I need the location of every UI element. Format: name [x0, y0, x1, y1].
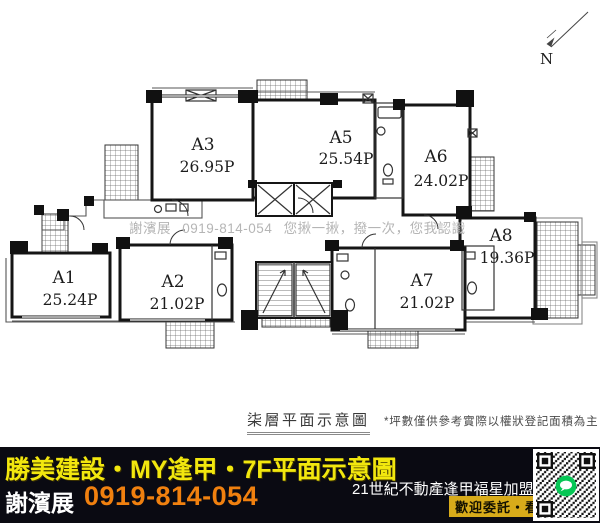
area-disclaimer: *坪數僅供參考實際以權狀登記面積為主: [384, 413, 598, 429]
unit-a6-area: 24.02P: [414, 172, 469, 190]
unit-a7-id: A7: [409, 271, 433, 291]
unit-a2-id: A2: [160, 272, 184, 292]
qr-code: [533, 449, 599, 521]
agent-name: 謝濱展: [5, 484, 74, 518]
plan-caption: 柒層平面示意圖: [247, 409, 370, 435]
unit-a6-id: A6: [423, 147, 447, 167]
unit-a8-id: A8: [488, 226, 512, 246]
flyer: A3 26.95P A5 25.54P A6 24.02P A8 19.36P …: [0, 0, 600, 523]
unit-a2-area: 21.02P: [150, 295, 205, 313]
north-label: N: [540, 50, 553, 68]
unit-a7-room: [332, 248, 465, 330]
north-arrow-icon: N: [540, 12, 588, 68]
unit-a5-id: A5: [328, 128, 352, 148]
unit-a1-id: A1: [51, 268, 75, 288]
unit-a1-area: 25.24P: [43, 291, 98, 309]
line-logo-icon: [556, 476, 577, 497]
unit-a5-area: 25.54P: [319, 150, 374, 168]
unit-a3-area: 26.95P: [180, 158, 235, 176]
agent-phone: 0919-814-054: [84, 481, 258, 512]
unit-a8-area: 19.36P: [480, 249, 535, 267]
unit-a7-area: 21.02P: [400, 294, 455, 312]
watermark: 謝濱展 0919-814-054 您揪一揪，撥一次，您我認識: [129, 217, 466, 237]
unit-a3-id: A3: [190, 135, 214, 155]
footer-banner: 勝美建設・MY逢甲・7F平面示意圖 謝濱展 0919-814-054 21世紀不…: [0, 447, 600, 523]
